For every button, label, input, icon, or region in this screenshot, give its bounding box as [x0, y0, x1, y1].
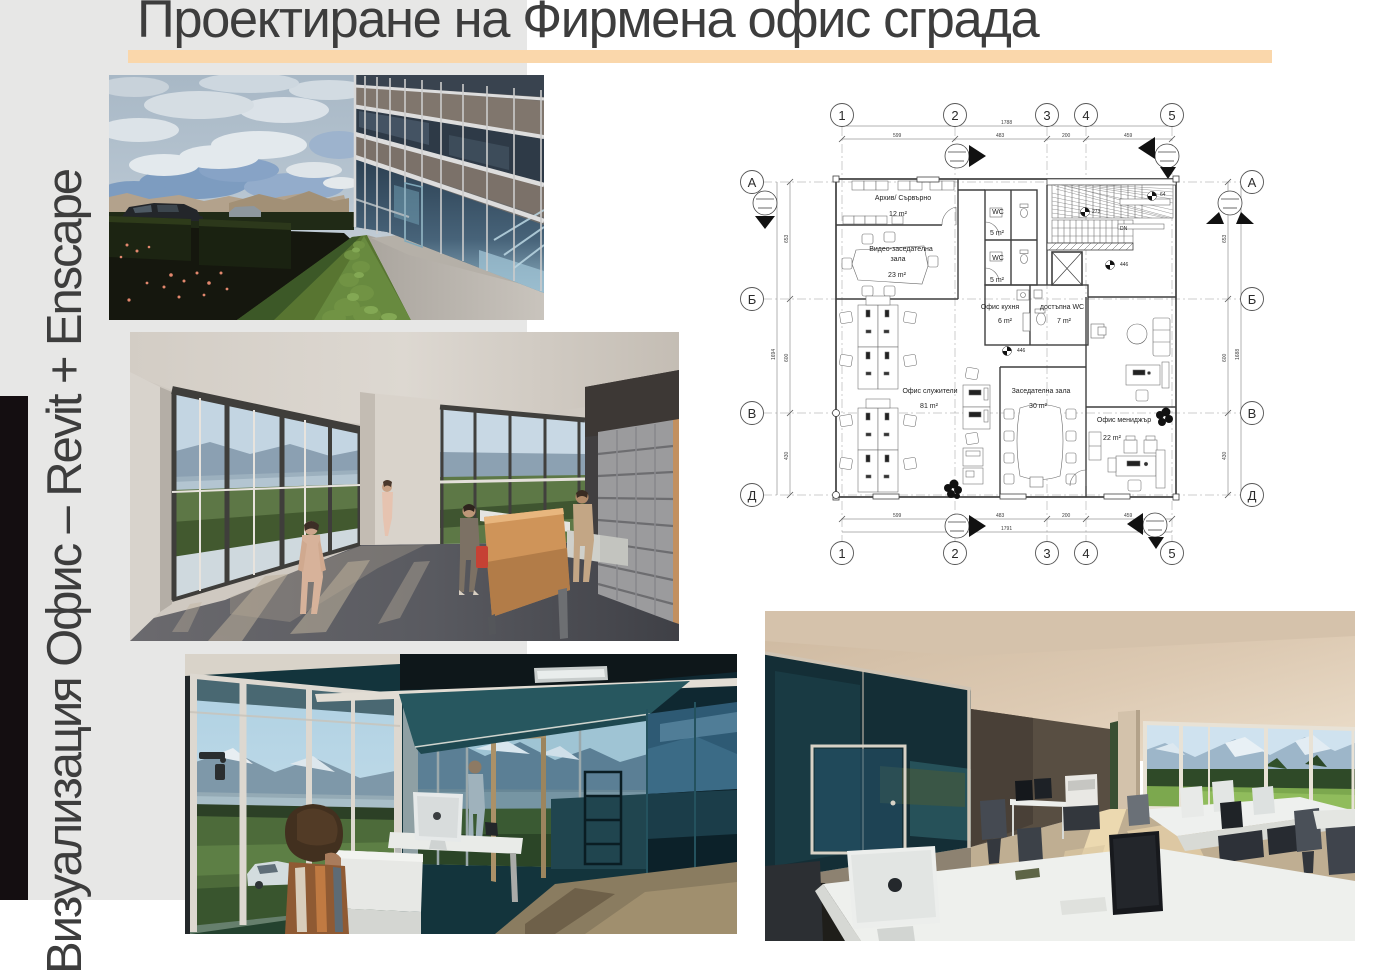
svg-text:Д: Д: [1248, 488, 1257, 503]
svg-text:А: А: [1248, 175, 1257, 190]
svg-text:64: 64: [1160, 192, 1166, 198]
svg-text:Д: Д: [748, 488, 757, 503]
svg-text:430: 430: [1222, 451, 1228, 460]
svg-text:6 m²: 6 m²: [998, 318, 1013, 325]
svg-text:Офис служители: Офис служители: [902, 388, 957, 395]
svg-text:273: 273: [1092, 209, 1101, 215]
svg-text:446: 446: [1120, 262, 1129, 268]
svg-text:459: 459: [1124, 133, 1133, 139]
svg-text:22 m²: 22 m²: [1103, 435, 1122, 442]
svg-text:Заседателна зала: Заседателна зала: [1012, 388, 1071, 395]
svg-text:2: 2: [951, 108, 958, 123]
svg-text:599: 599: [893, 513, 902, 519]
svg-text:Офис мениджър: Офис мениджър: [1097, 417, 1151, 424]
svg-text:WC: WC: [992, 255, 1004, 262]
svg-text:2: 2: [951, 546, 958, 561]
svg-text:1: 1: [838, 108, 845, 123]
svg-text:483: 483: [996, 513, 1005, 519]
svg-text:А: А: [748, 175, 757, 190]
svg-text:1791: 1791: [1001, 526, 1012, 532]
svg-text:7 m²: 7 m²: [1057, 318, 1072, 325]
svg-text:200: 200: [1062, 513, 1071, 519]
svg-text:1: 1: [838, 546, 845, 561]
svg-text:653: 653: [784, 234, 790, 243]
svg-text:DN: DN: [1120, 226, 1128, 232]
svg-text:459: 459: [1124, 513, 1133, 519]
svg-text:WC: WC: [992, 209, 1004, 216]
svg-text:В: В: [748, 406, 757, 421]
svg-text:5 m²: 5 m²: [990, 230, 1005, 237]
svg-text:200: 200: [1062, 133, 1071, 139]
svg-text:12 m²: 12 m²: [889, 211, 908, 218]
svg-text:достъпна WC: достъпна WC: [1040, 304, 1084, 311]
svg-text:В: В: [1248, 406, 1257, 421]
svg-text:483: 483: [996, 133, 1005, 139]
svg-text:446: 446: [1017, 348, 1026, 354]
svg-text:1694: 1694: [771, 349, 777, 360]
svg-text:600: 600: [1222, 353, 1228, 362]
svg-text:30 m²: 30 m²: [1029, 403, 1048, 410]
svg-text:5: 5: [1168, 546, 1175, 561]
svg-text:Видео-заседателна: Видео-заседателна: [869, 246, 933, 253]
svg-text:5 m²: 5 m²: [990, 277, 1005, 284]
svg-text:1688: 1688: [1235, 349, 1241, 360]
svg-text:3: 3: [1043, 546, 1050, 561]
svg-text:4: 4: [1082, 546, 1089, 561]
svg-text:23 m²: 23 m²: [888, 272, 907, 279]
svg-text:1788: 1788: [1001, 120, 1012, 126]
svg-text:Б: Б: [748, 292, 757, 307]
svg-text:430: 430: [784, 451, 790, 460]
svg-text:3: 3: [1043, 108, 1050, 123]
svg-text:600: 600: [784, 353, 790, 362]
svg-text:599: 599: [893, 133, 902, 139]
svg-text:Б: Б: [1248, 292, 1257, 307]
svg-text:81 m²: 81 m²: [920, 403, 939, 410]
svg-text:4: 4: [1082, 108, 1089, 123]
svg-text:653: 653: [1222, 234, 1228, 243]
svg-text:зала: зала: [890, 256, 905, 263]
svg-text:5: 5: [1168, 108, 1175, 123]
svg-text:Офис кухня: Офис кухня: [981, 304, 1020, 311]
svg-text:Архив/ Сървърно: Архив/ Сървърно: [875, 195, 931, 202]
